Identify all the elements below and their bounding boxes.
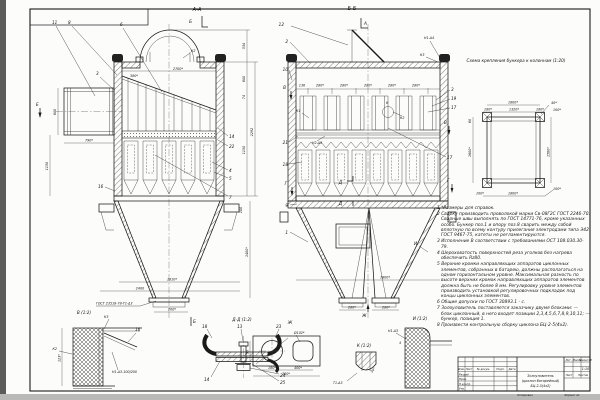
dim-2700: 2700*: [173, 67, 183, 71]
item-21: 21: [283, 140, 289, 145]
dim-180-right: 180*: [536, 108, 544, 112]
view-zh-label: Ж: [287, 320, 293, 325]
dim-136: 136: [299, 84, 305, 88]
kopiroval-label: Копировал: [517, 393, 533, 397]
dim-400: 400*: [294, 366, 302, 370]
item-18: 18: [202, 324, 208, 329]
dim-280: 280*: [364, 84, 372, 88]
scheme-title: Схема крепления бункера к колоннам (1:20…: [467, 58, 566, 63]
weld-k2: К2: [400, 116, 404, 120]
doc-name-line1: Золоуловитель: [527, 374, 553, 378]
cut-mark-b-top: Б: [189, 19, 192, 24]
dim-2292: 2292: [250, 128, 254, 136]
dim-123: 123*: [58, 354, 62, 362]
item-8: 8: [68, 20, 71, 25]
note-2: 2 Сварку производить проволокой марки Св…: [437, 212, 590, 239]
view-mark-j: Ж: [361, 313, 367, 318]
item-9: 9: [285, 203, 288, 208]
item-3: 3: [451, 87, 454, 92]
view-mark-v-left: В: [283, 85, 286, 90]
doc-name-line2: (циклон батарейный): [522, 379, 559, 383]
item-4: 4: [229, 168, 232, 173]
item-2: 2: [285, 39, 288, 44]
tube-sheet: [122, 131, 216, 138]
dim-1150-right: 1150: [242, 146, 246, 154]
lifting-lug: [215, 54, 226, 62]
scale-value: 1:10: [582, 367, 589, 371]
dim-1150: 1150: [45, 162, 49, 170]
cut-mark-a: А: [363, 21, 367, 26]
item-5: 5: [229, 176, 232, 181]
row-prov: Пров.: [459, 377, 467, 381]
dim-180-left: 180*: [484, 108, 492, 112]
page-edge-bottom: [0, 394, 600, 400]
dim-90: 90: [246, 350, 250, 354]
dim-1580: 1580*: [547, 147, 551, 157]
weld-k2-label: К2: [53, 347, 57, 351]
item-10: 10: [283, 67, 289, 72]
dim-1400: 1400*: [245, 247, 249, 257]
item-22: 22: [229, 144, 235, 149]
view-mark-e: Е: [36, 102, 39, 107]
drawing-sheet-scan: { "aa": { "title": "А-А", "markB": "Б", …: [0, 0, 600, 400]
dim-100: 100: [239, 207, 243, 213]
dim-100-bottomleft: 100*: [476, 192, 484, 196]
dim-40: 40*: [551, 101, 557, 105]
technical-notes: 1 *Размеры для справок. 2 Сварку произво…: [437, 206, 590, 329]
lit-header: Лит.: [564, 358, 571, 362]
dim-1800-bottom: 1800*: [508, 192, 518, 196]
item-12: 12: [279, 22, 285, 27]
col-list: Лист: [465, 367, 473, 371]
item-17: 17: [447, 155, 453, 160]
note-5: 5 Верхние кромки направляющих аппаратов …: [437, 262, 590, 300]
item-20: 17: [451, 105, 457, 110]
dim-1800: 1800*: [380, 276, 390, 280]
detail-v-label: В (1:2): [77, 310, 92, 315]
item-19: 19: [451, 96, 457, 101]
lifting-lug: [112, 54, 123, 62]
item-14: 14: [229, 134, 235, 139]
format-label: Формат А1: [564, 393, 580, 397]
note-3: 3 Исполнение В соответствии с требования…: [437, 239, 590, 250]
list-header: Лист: [565, 373, 573, 377]
detail-k-label: К (1:2): [357, 343, 372, 348]
view-title-bb: Б-Б: [348, 6, 357, 12]
dim-380: 380*: [130, 74, 138, 78]
weld-n2: Н2-Δ3: [312, 141, 322, 145]
lifting-lug: [439, 54, 450, 62]
note-6: 6 Общие допуски по ГОСТ 30893.1 - с.: [437, 300, 590, 305]
item-6: 6: [120, 22, 123, 27]
item-25: 25: [280, 380, 286, 385]
weld-t1-label: Т1-Δ3: [333, 381, 343, 385]
note-8: 8 Произвести контрольную сборку циклона …: [437, 323, 590, 328]
weld-k3-label: К3: [104, 315, 108, 319]
col-podp: Подп.: [496, 367, 504, 371]
dim-280-outlet: 280*: [382, 306, 390, 310]
cut-mark-b-bottom: Б: [193, 319, 196, 324]
weld-n1-d4: Н1-Δ4: [424, 36, 434, 40]
left-wall: [114, 62, 122, 196]
left-wall: [288, 62, 296, 201]
engineering-drawing: А-А Б К2: [0, 0, 600, 400]
col-izm: Изм.: [458, 367, 464, 371]
dim-760: 760*: [282, 372, 290, 376]
dim-100-bottomright: 100*: [553, 187, 561, 191]
detail-dd-label: Д-Д (1:2): [231, 317, 252, 322]
dim-4: 4: [399, 341, 401, 345]
dim-280: 280*: [316, 84, 324, 88]
doc-name-line3: БЦ-2-5(4х2): [530, 384, 550, 388]
listov-header: Листов: [577, 373, 588, 377]
dim-790: 790*: [85, 139, 93, 143]
item-16: 16: [98, 184, 104, 189]
item-14: 14: [204, 377, 210, 382]
dim-100-topright: 100*: [553, 108, 561, 112]
weld-n1-100-200: Н1-Δ3-100/200: [112, 370, 137, 374]
dim-200: 200*: [168, 308, 176, 312]
weld-n1-label: Н1-Δ3: [388, 329, 398, 333]
cut-mark-d-top: Д: [338, 180, 343, 185]
dim-60: 60: [468, 119, 472, 123]
dim-280: 280*: [340, 84, 348, 88]
item-13: 13: [237, 324, 243, 329]
dim-600-inlet: 600: [53, 109, 57, 115]
dim-2400: 2400: [136, 287, 144, 291]
weld-gost-label: ГОСТ 23518-78-Т1-Δ3: [96, 302, 133, 306]
lifting-lug: [286, 54, 297, 62]
dim-1810: 1810*: [167, 278, 177, 282]
dim-180: 180*: [268, 366, 276, 370]
dim-1800-top: 1800*: [508, 101, 518, 105]
weld-k1: К1: [296, 109, 300, 113]
item-3: 3: [96, 71, 99, 76]
note-1: 1 *Размеры для справок.: [437, 206, 590, 211]
row-nkontr: Н.контр.: [459, 382, 471, 386]
col-data: Дата: [508, 367, 516, 371]
view-title-aa: А-А: [192, 7, 202, 13]
item-16-label: 16: [135, 327, 141, 332]
item-23: 23: [276, 324, 282, 329]
hopper-flange: [288, 201, 448, 208]
row-utv: Утв.: [459, 387, 465, 391]
item-7: 7: [229, 195, 232, 200]
page-edge-left: [0, 0, 6, 400]
dim-1600: 1600*: [468, 147, 472, 157]
note-7: 7 Золоуловитель поставляется заказчику д…: [437, 306, 590, 322]
row-razrab: Разраб.: [459, 372, 470, 376]
hole-dia-label: Ø102*: [293, 330, 305, 335]
note-4: 4 Шероховатость поверхностей реза уголко…: [437, 251, 590, 262]
weld-k2-label: К2: [191, 49, 195, 53]
cut-mark-d-bottom: Д: [338, 201, 343, 206]
item-18: 18: [283, 162, 289, 167]
item-1: 1: [285, 230, 288, 235]
dim-600-right: 600: [242, 76, 246, 82]
masshtab-header: Масштаб: [579, 358, 592, 362]
dim-280-outlet: 280*: [348, 306, 356, 310]
weld-k3: К3: [420, 53, 424, 57]
item-11: 11: [52, 20, 58, 25]
dim-280: 280*: [388, 84, 396, 88]
view-mark-v-right: В: [444, 120, 447, 125]
dim-280: 280*: [412, 84, 420, 88]
dim-534: 534: [242, 43, 246, 49]
dim-1320: 1320*: [509, 108, 519, 112]
dim-74: 74: [242, 95, 246, 99]
col-ndok: № докум.: [476, 367, 490, 371]
detail-i-label: И (1:2): [413, 316, 428, 321]
